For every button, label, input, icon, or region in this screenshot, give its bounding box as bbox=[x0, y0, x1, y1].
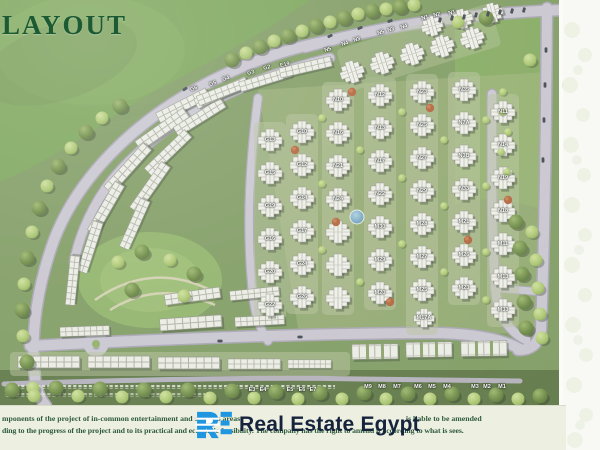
page-title: LAYOUT bbox=[2, 10, 127, 41]
brand-logo-icon bbox=[194, 409, 234, 441]
right-fade-strip bbox=[559, 0, 600, 450]
masterplan-map bbox=[0, 0, 600, 450]
brand-name: Real Estate Egypt bbox=[239, 413, 420, 437]
watermark: Real Estate Egypt bbox=[194, 406, 420, 444]
screenshot-root: N5N4N3N5N3N4N1N2N1G6G5G4G3G2E19G13G15G19… bbox=[0, 0, 600, 450]
